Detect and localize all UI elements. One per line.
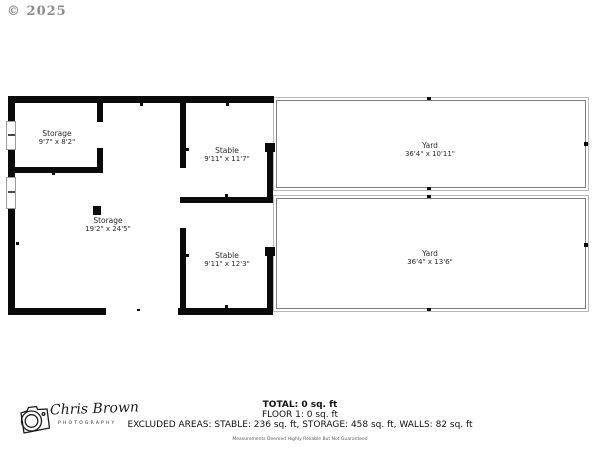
room-label-storage-1: Storage 9'7" x 8'2" xyxy=(12,129,102,147)
tick-mark xyxy=(226,103,229,106)
room-label-storage-2: Storage 19'2" x 24'5" xyxy=(48,216,168,234)
logo-name: Chris Brown xyxy=(50,399,139,418)
room-name: Storage xyxy=(12,129,102,138)
room-dimensions: 19'2" x 24'5" xyxy=(48,225,168,234)
room-dimensions: 9'7" x 8'2" xyxy=(12,138,102,147)
room-label-stable-1: Stable 9'11" x 11'7" xyxy=(182,146,272,164)
room-dimensions: 36'4" x 10'11" xyxy=(365,150,495,159)
wall-left-lower xyxy=(8,209,15,315)
wall-top xyxy=(8,96,274,103)
tick-mark xyxy=(16,242,19,245)
logo-subtitle: PHOTOGRAPHY xyxy=(58,421,117,426)
wall-bottom-right xyxy=(178,308,273,315)
tick-mark xyxy=(52,171,55,175)
floor-plan-page: © 2025 xyxy=(0,0,600,450)
tick-mark xyxy=(140,103,143,106)
window-2 xyxy=(6,177,16,209)
wall-bottom-left xyxy=(8,308,106,315)
room-name: Stable xyxy=(182,251,272,260)
room-dimensions: 36'4" x 13'6" xyxy=(365,258,495,267)
wall-stable-divider xyxy=(180,197,273,203)
room-name: Storage xyxy=(48,216,168,225)
room-name: Yard xyxy=(365,141,495,150)
tick-mark xyxy=(584,142,588,146)
room-label-yard-1: Yard 36'4" x 10'11" xyxy=(365,141,495,159)
window-2-mullion xyxy=(8,191,15,193)
room-name: Yard xyxy=(365,249,495,258)
room-dimensions: 9'11" x 11'7" xyxy=(182,155,272,164)
wall-left-upper xyxy=(8,96,15,122)
room-label-stable-2: Stable 9'11" x 12'3" xyxy=(182,251,272,269)
tick-mark xyxy=(137,309,140,311)
wall-storage1-bottom xyxy=(8,167,103,173)
wall-stables-left-lower xyxy=(180,228,186,315)
photographer-logo: Chris Brown PHOTOGRAPHY xyxy=(14,397,134,442)
wall-storage1-right-upper xyxy=(97,96,103,122)
room-label-yard-2: Yard 36'4" x 13'6" xyxy=(365,249,495,267)
camera-icon xyxy=(14,402,54,438)
room-name: Stable xyxy=(182,146,272,155)
tick-mark xyxy=(427,97,431,100)
tick-mark xyxy=(225,194,228,197)
tick-mark xyxy=(427,308,431,311)
room-dimensions: 9'11" x 12'3" xyxy=(182,260,272,269)
tick-mark xyxy=(427,195,431,198)
tick-mark xyxy=(225,305,228,308)
column-post xyxy=(93,206,101,215)
tick-mark xyxy=(427,187,431,190)
tick-mark xyxy=(584,243,588,247)
floor-plan: Storage 9'7" x 8'2" Stable 9'11" x 11'7"… xyxy=(0,0,600,450)
